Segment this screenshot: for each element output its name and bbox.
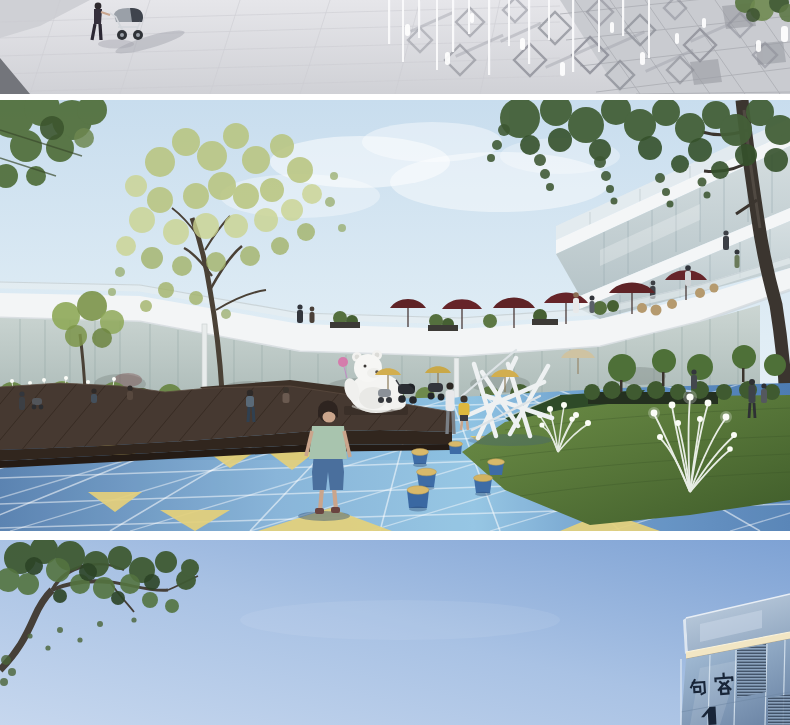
stool [407,486,429,512]
stool [474,474,493,496]
stool [412,449,429,467]
stool [488,459,505,475]
render-top-plaza [0,0,790,94]
render-middle-courtyard [0,100,790,531]
render-bottom-building [0,540,790,725]
balloon [338,357,348,367]
column [454,358,459,400]
render-gallery [0,0,790,725]
stool [449,441,463,454]
